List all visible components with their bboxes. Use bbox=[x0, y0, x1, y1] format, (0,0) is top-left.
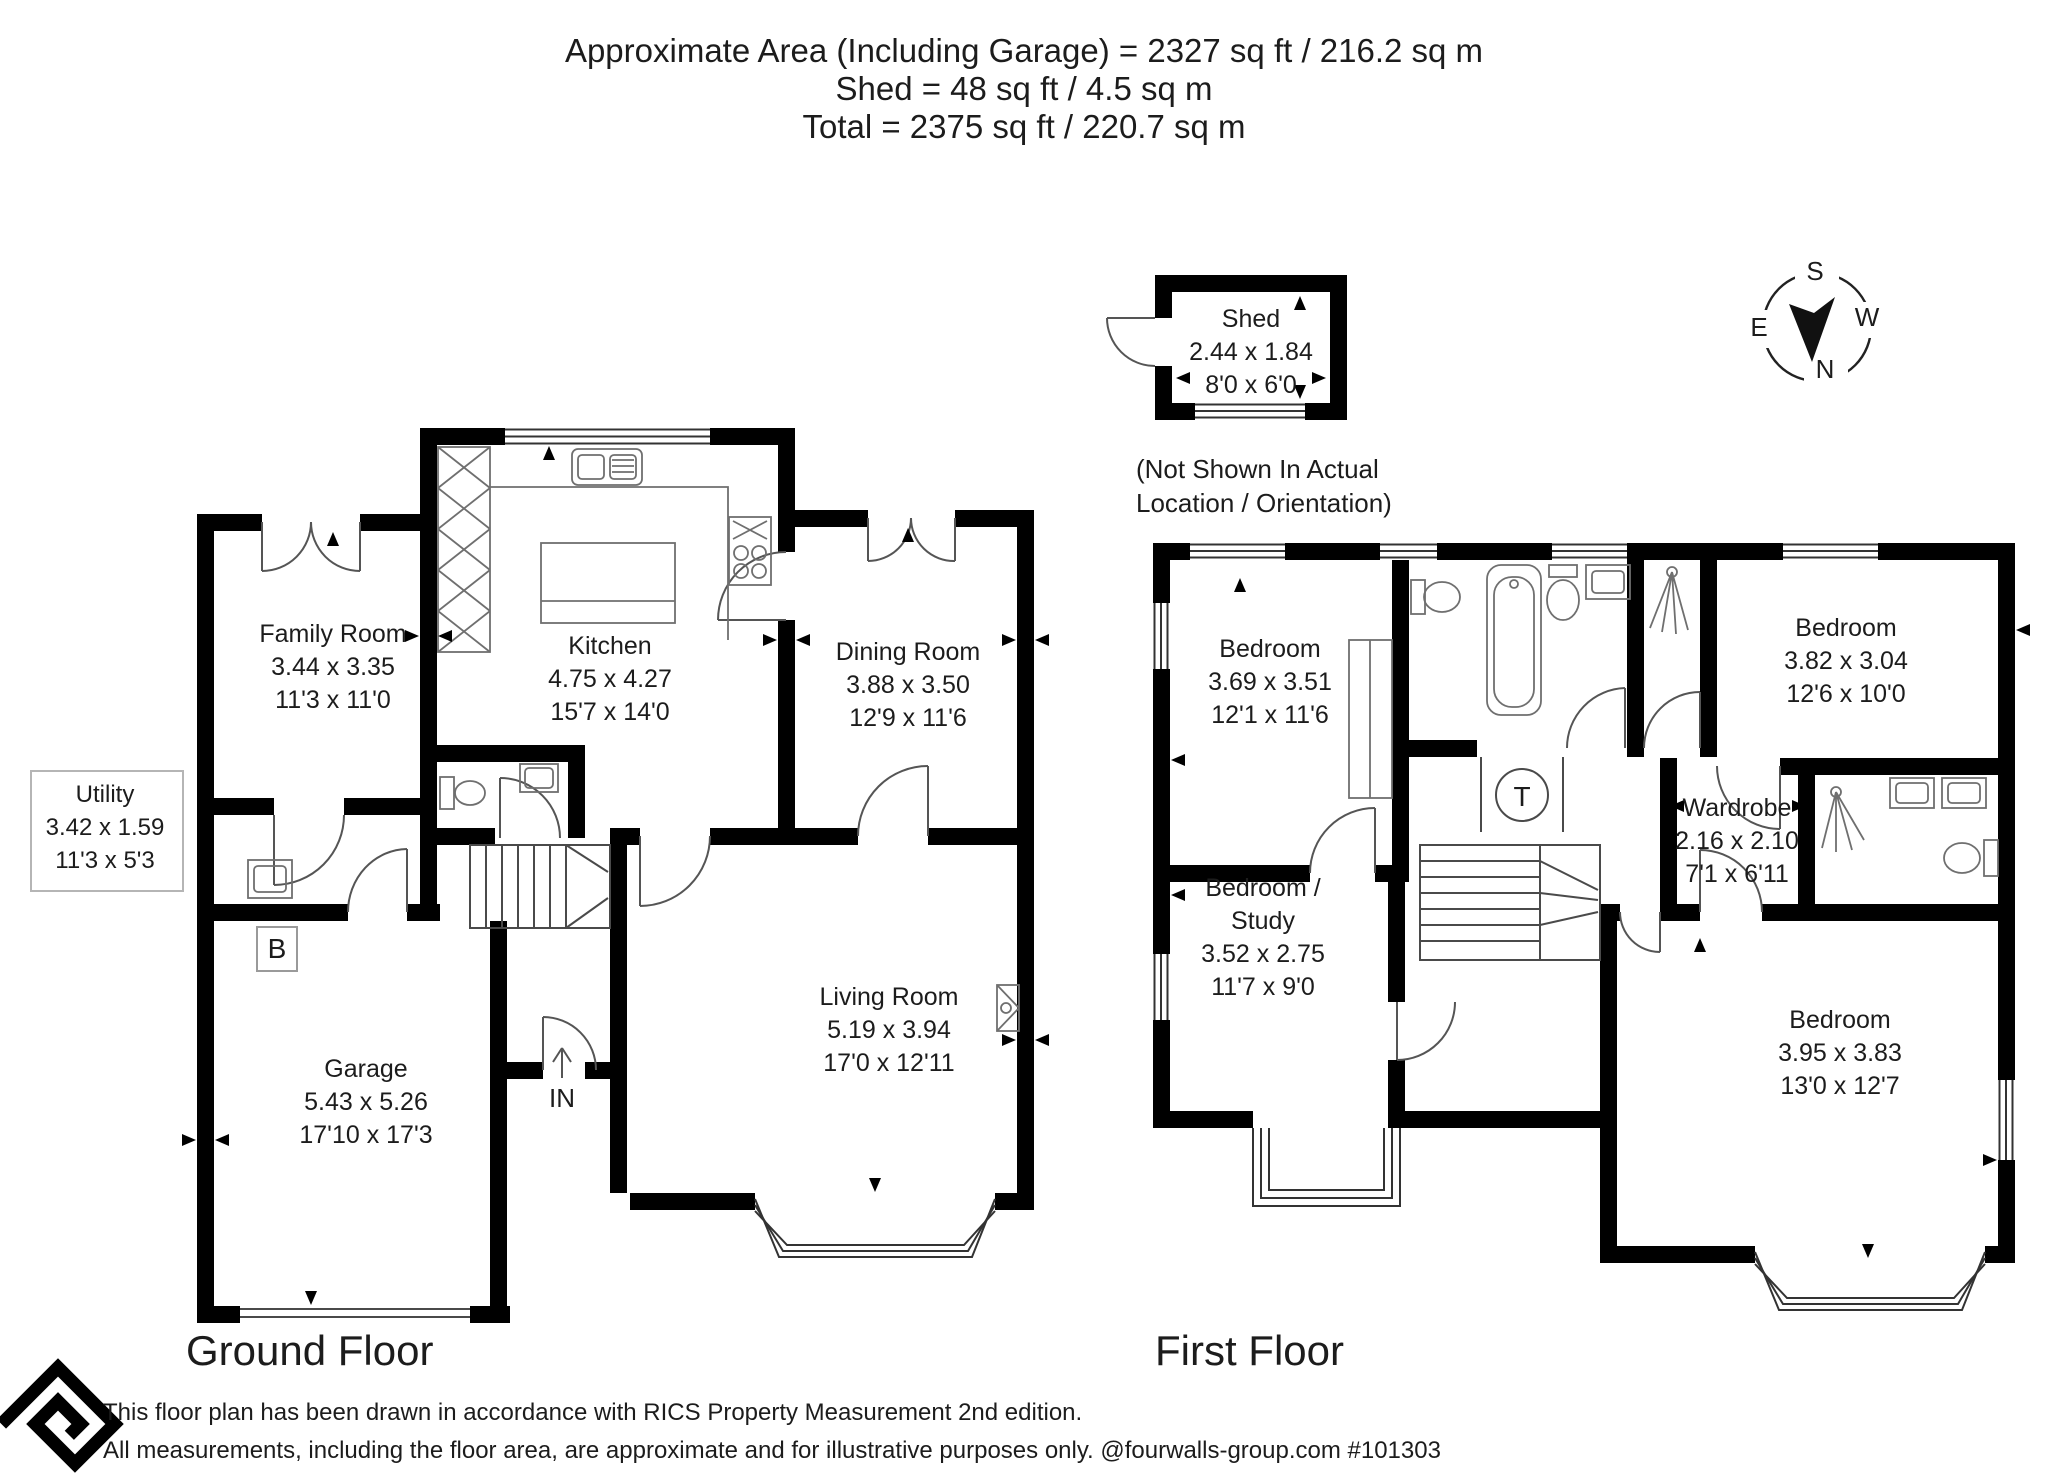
room-label-living-room: Living Room 5.19 x 3.94 17'0 x 12'11 bbox=[729, 981, 1049, 1080]
compass-needle bbox=[1789, 297, 1835, 362]
footer-line-1: This floor plan has been drawn in accord… bbox=[103, 1398, 1082, 1428]
shed-metric: 2.44 x 1.84 bbox=[1131, 336, 1371, 369]
floorplan-page: .wall{fill:#000;} .thin{stroke:#4a4a4a;s… bbox=[0, 0, 2048, 1473]
compass-north: N bbox=[1808, 356, 1842, 382]
shed-note: (Not Shown In Actual Location / Orientat… bbox=[1136, 452, 1392, 520]
utility-sink bbox=[248, 860, 292, 898]
kitchen-island bbox=[541, 543, 675, 623]
floorplan-graphics: .wall{fill:#000;} .thin{stroke:#4a4a4a;s… bbox=[0, 0, 2048, 1473]
room-label-garage: Garage 5.43 x 5.26 17'10 x 17'3 bbox=[206, 1053, 526, 1152]
entrance-label: IN bbox=[532, 1083, 592, 1114]
wc-toilet bbox=[440, 777, 485, 809]
first-floor-stairs bbox=[1420, 845, 1600, 960]
room-label-bedroom3: Bedroom 3.95 x 3.83 13'0 x 12'7 bbox=[1680, 1004, 2000, 1103]
room-label-wardrobe: Wardrobe 2.16 x 2.10 7'1 x 6'11 bbox=[1577, 792, 1897, 891]
room-label-bedroom2: Bedroom 3.82 x 3.04 12'6 x 10'0 bbox=[1686, 612, 2006, 711]
shed-imperial: 8'0 x 6'0 bbox=[1131, 369, 1371, 402]
room-label-dining-room: Dining Room 3.88 x 3.50 12'9 x 11'6 bbox=[748, 636, 1068, 735]
tank-label: T bbox=[1502, 781, 1542, 813]
entrance-arrow bbox=[553, 1048, 571, 1078]
ground-floor-title: Ground Floor bbox=[186, 1328, 433, 1374]
area-summary-line1: Approximate Area (Including Garage) = 23… bbox=[0, 32, 2048, 70]
fourwalls-logo bbox=[1, 1367, 114, 1473]
shower-room-fixtures bbox=[1650, 567, 1688, 634]
compass-west: W bbox=[1850, 304, 1884, 330]
compass-east: E bbox=[1742, 314, 1776, 340]
room-label-utility: Utility 3.42 x 1.59 11'3 x 5'3 bbox=[32, 778, 178, 877]
bathroom-fixtures bbox=[1411, 565, 1630, 715]
kitchen-sink bbox=[572, 449, 642, 485]
wc-basin bbox=[520, 764, 558, 792]
area-summary-line2: Shed = 48 sq ft / 4.5 sq m bbox=[0, 70, 2048, 108]
bedroom3-bay-window bbox=[1755, 1252, 1985, 1310]
compass-south: S bbox=[1798, 258, 1832, 284]
study-bay-window bbox=[1253, 1128, 1400, 1206]
utility-callout-box: Utility 3.42 x 1.59 11'3 x 5'3 bbox=[30, 770, 184, 892]
footer-line-2: All measurements, including the floor ar… bbox=[103, 1436, 1441, 1466]
kitchen-hob bbox=[729, 517, 771, 585]
shed-name: Shed bbox=[1131, 303, 1371, 336]
first-floor-title: First Floor bbox=[1155, 1328, 1344, 1374]
area-summary-line3: Total = 2375 sq ft / 220.7 sq m bbox=[0, 108, 2048, 146]
ground-floor-plan bbox=[182, 428, 1049, 1323]
kitchen-counter bbox=[490, 487, 728, 640]
room-label-bedroom1: Bedroom 3.69 x 3.51 12'1 x 11'6 bbox=[1110, 633, 1430, 732]
area-summary: Approximate Area (Including Garage) = 23… bbox=[0, 32, 2048, 146]
room-label-kitchen: Kitchen 4.75 x 4.27 15'7 x 14'0 bbox=[450, 630, 770, 729]
boiler-label: B bbox=[256, 926, 298, 972]
room-label-bedroom-study: Bedroom / Study 3.52 x 2.75 11'7 x 9'0 bbox=[1103, 872, 1423, 1004]
room-label-family-room: Family Room 3.44 x 3.35 11'3 x 11'0 bbox=[173, 618, 493, 717]
living-bay-window bbox=[755, 1199, 995, 1257]
shed-label: Shed 2.44 x 1.84 8'0 x 6'0 bbox=[1131, 303, 1371, 402]
